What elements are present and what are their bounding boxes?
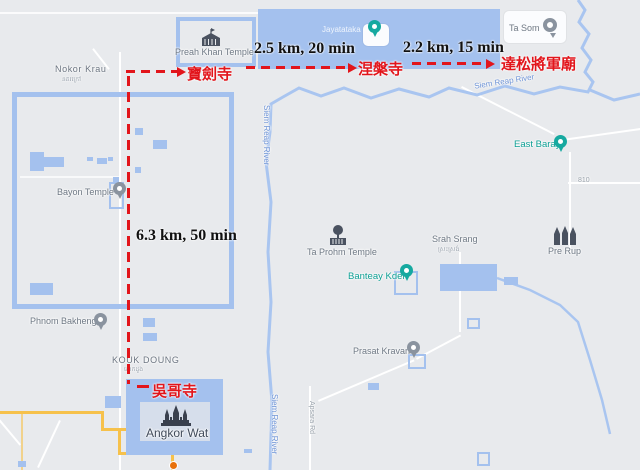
yellow-road (118, 428, 121, 455)
prasat-kravan-label: Prasat Kravan (353, 346, 410, 356)
route-stop-ta-som: 達松將軍廟 (501, 53, 576, 74)
srah-srang-label: Srah Srang (432, 234, 478, 244)
apsara-rd-label: Apsara Rd (308, 401, 315, 434)
water-shape (143, 333, 157, 341)
route-stop-preah-khan: 寶劍寺 (187, 63, 232, 84)
water-shape (244, 449, 252, 453)
route-dash-leg1 (126, 70, 178, 73)
water-shape (368, 383, 379, 390)
water-shape (504, 277, 518, 285)
map-canvas[interactable]: Ta Som Jayatataka Preah Khan Temple Noko… (0, 0, 640, 470)
banteay-kdei-label: Banteay Kdei (348, 271, 405, 282)
road-dot (169, 461, 178, 470)
route-arrow-leg3 (486, 59, 495, 69)
route-annotation-leg1: 2.5 km, 20 min (254, 40, 355, 58)
preah-khan-label: Preah Khan Temple (175, 47, 254, 57)
water-shape (105, 396, 121, 408)
route-stop-angkor-wat: 吳哥寺 (152, 380, 197, 401)
jayatataka-pin[interactable] (368, 20, 381, 33)
water-shape (108, 157, 113, 161)
route-dash-leg3 (412, 62, 488, 65)
yellow-road (0, 411, 104, 414)
east-baray-pin[interactable] (554, 135, 567, 148)
ta-prohm-temple-icon[interactable] (327, 224, 349, 246)
water-shape (97, 158, 107, 164)
kouk-doung-label: KOUK DOUNG (112, 355, 180, 365)
water-outline-small (477, 452, 490, 466)
route-arrow-leg1 (177, 67, 186, 77)
phnom-bakheng-pin[interactable] (94, 313, 107, 326)
route-annotation-leg2: 2.2 km, 15 min (403, 39, 504, 57)
bayon-pin[interactable] (113, 182, 126, 195)
srah-srang-reservoir (440, 264, 497, 291)
route-annotation-leg4: 6.3 km, 50 min (136, 227, 237, 245)
water-shape (153, 140, 167, 149)
route-stop-neak-pean: 涅槃寺 (358, 58, 403, 79)
nokor-krau-label: Nokor Krau (55, 64, 107, 74)
siem-reap-river-label: Siem Reap River (262, 105, 271, 165)
water-shape (18, 461, 26, 467)
pre-rup-label: Pre Rup (548, 246, 581, 256)
siem-reap-river-label: Siem Reap River (270, 394, 279, 454)
route-dash-leg4-vertical (127, 76, 130, 384)
route-arrow-leg2 (348, 63, 357, 73)
ta-som-label: Ta Som (509, 23, 540, 33)
water-shape (143, 318, 155, 327)
water-shape (135, 167, 141, 173)
srah-srang-khmer: ស្រះស្រង់ (438, 245, 459, 254)
water-shape (42, 157, 64, 167)
ta-prohm-label: Ta Prohm Temple (307, 247, 377, 257)
angkor-wat-icon[interactable] (159, 405, 193, 426)
banteay-kdei-pin[interactable] (400, 264, 413, 277)
bayon-label: Bayon Temple (57, 187, 114, 197)
water-shape (135, 128, 143, 135)
water-shape (30, 283, 53, 295)
pre-rup-towers-icon[interactable] (552, 225, 578, 245)
prasat-kravan-pin[interactable] (407, 341, 420, 354)
water-shape (87, 157, 93, 161)
phnom-bakheng-label: Phnom Bakheng (30, 316, 97, 326)
jayatataka-label: Jayatataka (322, 25, 361, 34)
preah-khan-temple-icon[interactable] (198, 28, 224, 47)
angkor-wat-label: Angkor Wat (146, 426, 208, 440)
nokor-krau-khmer: នគរក្រៅ (62, 75, 81, 84)
route-dash-leg2 (246, 66, 348, 69)
yellow-road (101, 428, 127, 431)
water-outline-small (467, 318, 480, 329)
road-810-label: 810 (578, 177, 590, 184)
route-dash-end (137, 385, 149, 388)
ta-som-pin[interactable] (543, 18, 557, 32)
